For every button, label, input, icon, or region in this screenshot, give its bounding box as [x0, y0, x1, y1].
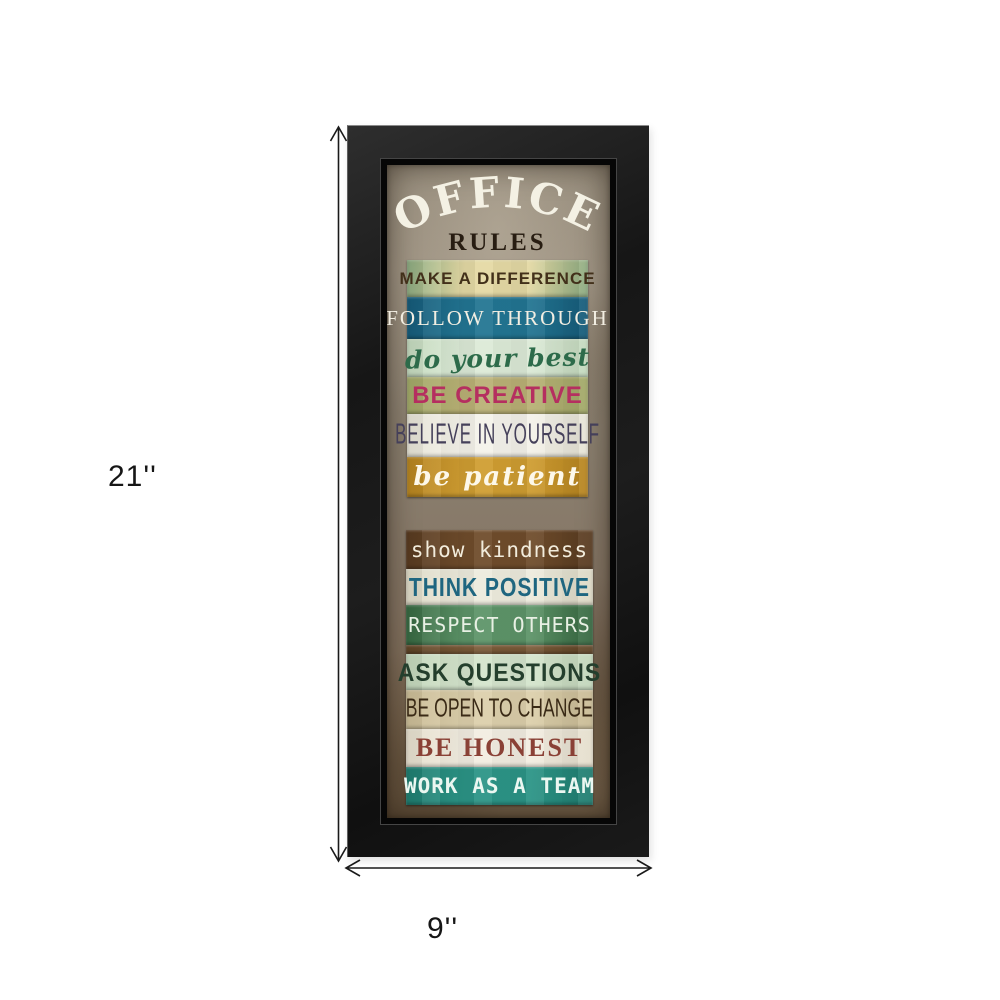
rule-strip: BE CREATIVE	[407, 377, 588, 414]
rule-strip: THINK POSITIVE	[406, 569, 593, 605]
rule-strip: MAKE A DIFFERENCE	[407, 260, 588, 297]
rule-strip-label: BE HONEST	[416, 733, 584, 763]
rule-strip-label: BELIEVE IN YOURSELF	[395, 419, 600, 452]
rule-strip: show kindness	[406, 530, 593, 569]
width-dimension-arrow	[346, 860, 651, 876]
rule-strip: ASK QUESTIONS	[406, 654, 593, 690]
rule-strip: BE OPEN TO CHANGE	[406, 690, 593, 729]
rule-strip-label: be patient	[413, 462, 581, 492]
rule-strip-label: BE OPEN TO CHANGE	[406, 695, 593, 725]
rule-strip	[406, 645, 593, 654]
rule-strip: FOLLOW THROUGH	[407, 297, 588, 339]
rule-strip: BE HONEST	[406, 729, 593, 767]
frame-inner-lip: OFFICE RULES MAKE A DIFFERENCE FOLLOW TH…	[381, 159, 616, 824]
rule-strip-label: BE CREATIVE	[412, 382, 583, 410]
rule-strip: RESPECT OTHERS	[406, 605, 593, 645]
rule-strip-label: show kindness	[411, 538, 588, 562]
art-frame: OFFICE RULES MAKE A DIFFERENCE FOLLOW TH…	[347, 125, 649, 857]
rule-strip: WORK AS A TEAM	[406, 767, 593, 805]
width-dimension-label: 9''	[427, 912, 458, 946]
rule-strip-label: THINK POSITIVE	[409, 572, 590, 602]
product-dimension-diagram: { "page": { "background": "#ffffff" }, "…	[0, 0, 1000, 1000]
height-dimension-arrow	[331, 127, 347, 861]
rule-strip-label: FOLLOW THROUGH	[387, 306, 609, 331]
rule-strip-label: RESPECT OTHERS	[408, 613, 591, 637]
rule-strip-label: do your best	[405, 342, 591, 374]
height-dimension-label: 21''	[108, 460, 157, 494]
rule-strip-label: WORK AS A TEAM	[404, 774, 595, 798]
rule-strip: do your best	[407, 339, 588, 377]
rule-strip: be patient	[407, 457, 588, 497]
rules-strips: MAKE A DIFFERENCE FOLLOW THROUGH do your…	[387, 165, 610, 818]
rule-strip-label: MAKE A DIFFERENCE	[399, 269, 595, 289]
rule-strip-label: ASK QUESTIONS	[398, 657, 601, 687]
art-print: OFFICE RULES MAKE A DIFFERENCE FOLLOW TH…	[387, 165, 610, 818]
rule-strip: BELIEVE IN YOURSELF	[407, 414, 588, 457]
